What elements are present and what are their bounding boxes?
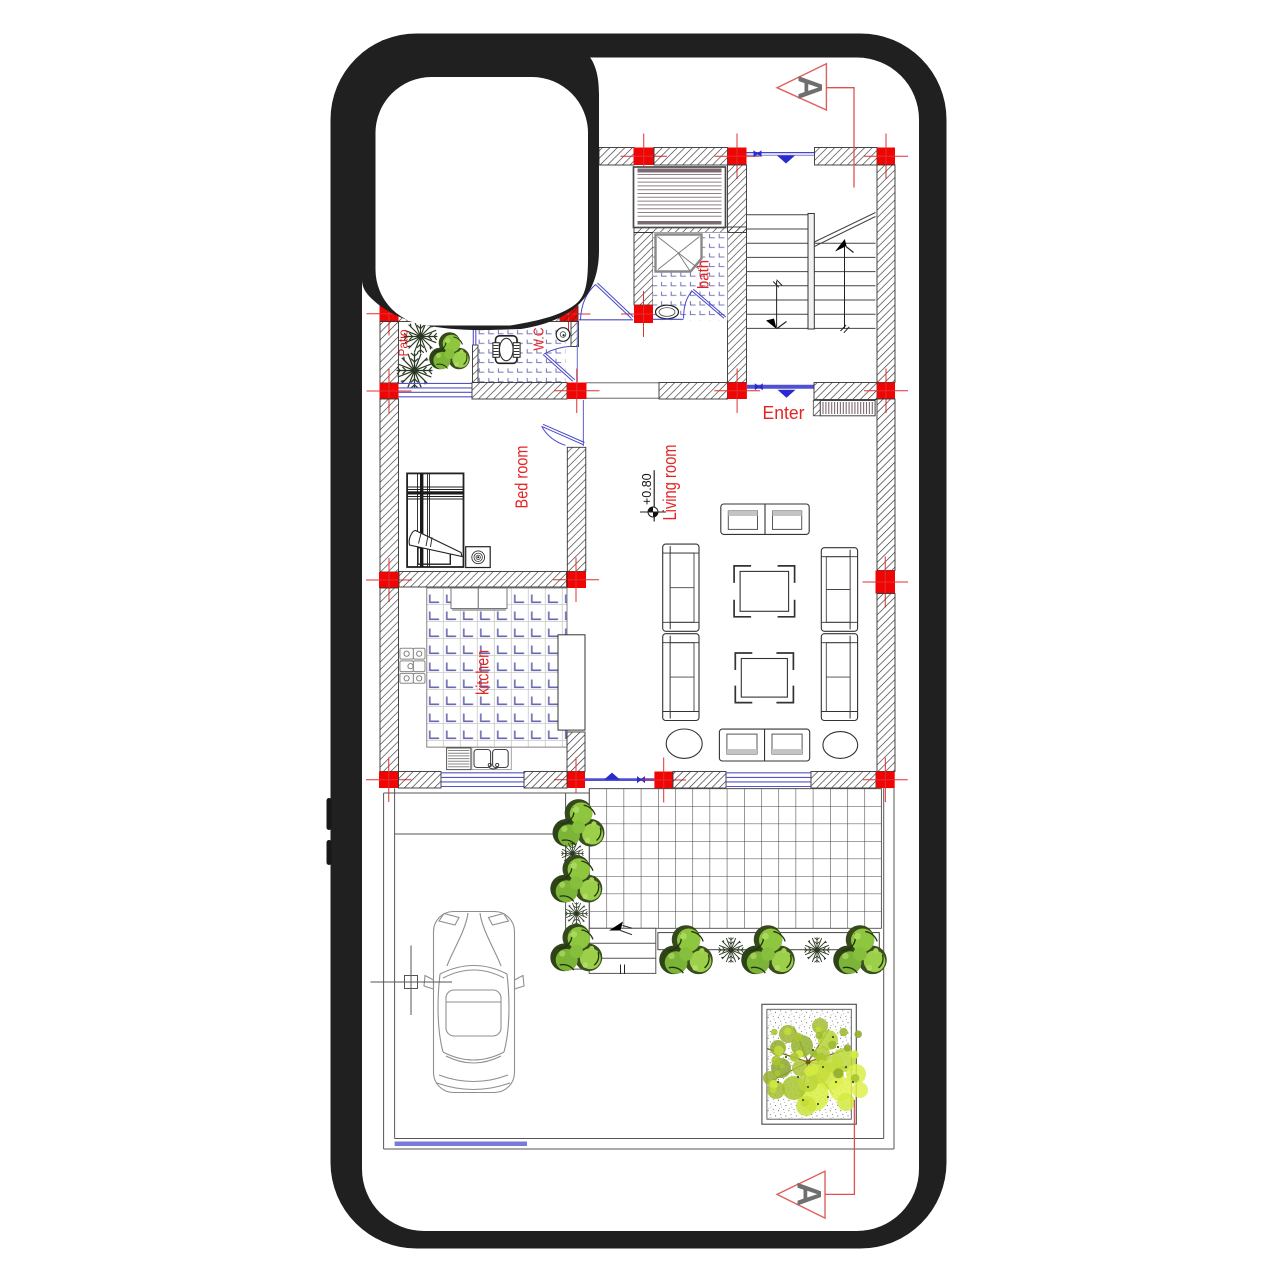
svg-text:A: A [790,1182,828,1207]
svg-text:bath: bath [696,260,713,289]
svg-text:Enter: Enter [763,403,805,423]
svg-text:A: A [791,75,829,100]
svg-text:+0.80: +0.80 [640,473,654,505]
svg-text:Living room: Living room [660,445,680,521]
svg-text:kitchen: kitchen [473,650,493,695]
svg-text:Bed room: Bed room [512,446,532,509]
svg-text:W.C: W.C [531,327,548,350]
